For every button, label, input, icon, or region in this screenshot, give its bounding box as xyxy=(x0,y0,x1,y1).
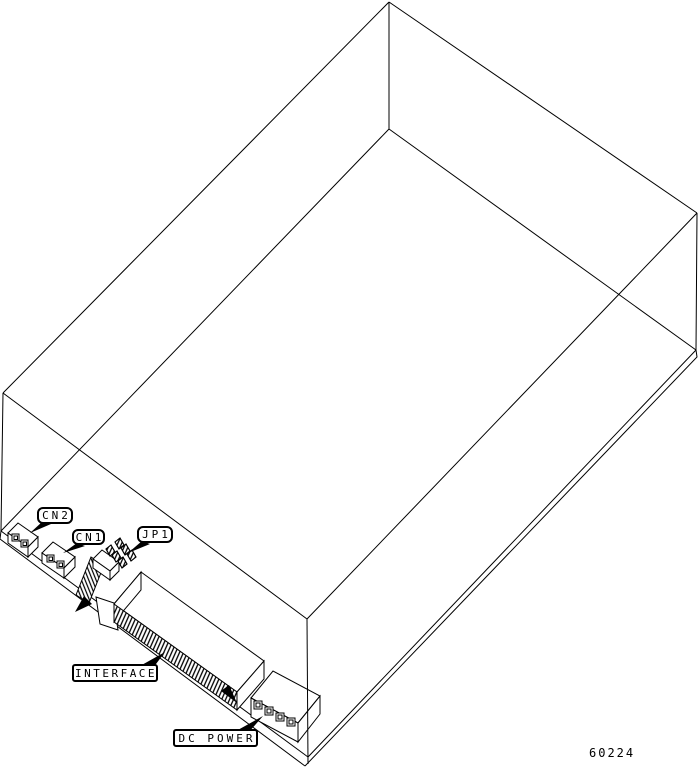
interface-label-text: INTERFACE xyxy=(75,668,157,679)
cn1-label-text: CN1 xyxy=(76,532,105,543)
part-number-text: 60224 xyxy=(589,746,635,760)
chassis-front-vertical-edge xyxy=(307,619,308,764)
cn1-slot-inner xyxy=(49,557,53,561)
chassis-hidden-edges xyxy=(1,2,696,531)
jp1-callout-label: JP1 xyxy=(137,526,173,543)
dc-power-label-text: DC POWER xyxy=(179,733,256,744)
cn1-slot-inner xyxy=(59,563,63,567)
cn2-slot-inner xyxy=(23,542,27,546)
cn2-slot-inner xyxy=(14,536,18,540)
interface-callout-label: INTERFACE xyxy=(72,664,158,682)
figure-part-number: 60224 xyxy=(589,747,635,759)
cn2-label-text: CN2 xyxy=(42,510,71,521)
jp1-label-text: JP1 xyxy=(142,529,171,540)
chassis-wireframe xyxy=(0,2,697,766)
cn2-callout-label: CN2 xyxy=(37,507,73,524)
dc-power-callout-label: DC POWER xyxy=(173,729,258,747)
drive-diagram: CN2 CN1 JP1 INTERFACE DC POWER 60224 xyxy=(0,0,699,768)
diagram-canvas xyxy=(0,0,699,768)
chassis-vertical-edges xyxy=(1,213,697,531)
cn1-connector xyxy=(42,542,75,578)
cn2-connector xyxy=(8,523,38,557)
cn1-callout-label: CN1 xyxy=(72,529,105,545)
chassis-top-face-edges xyxy=(3,2,697,619)
interface-connector xyxy=(96,572,264,710)
